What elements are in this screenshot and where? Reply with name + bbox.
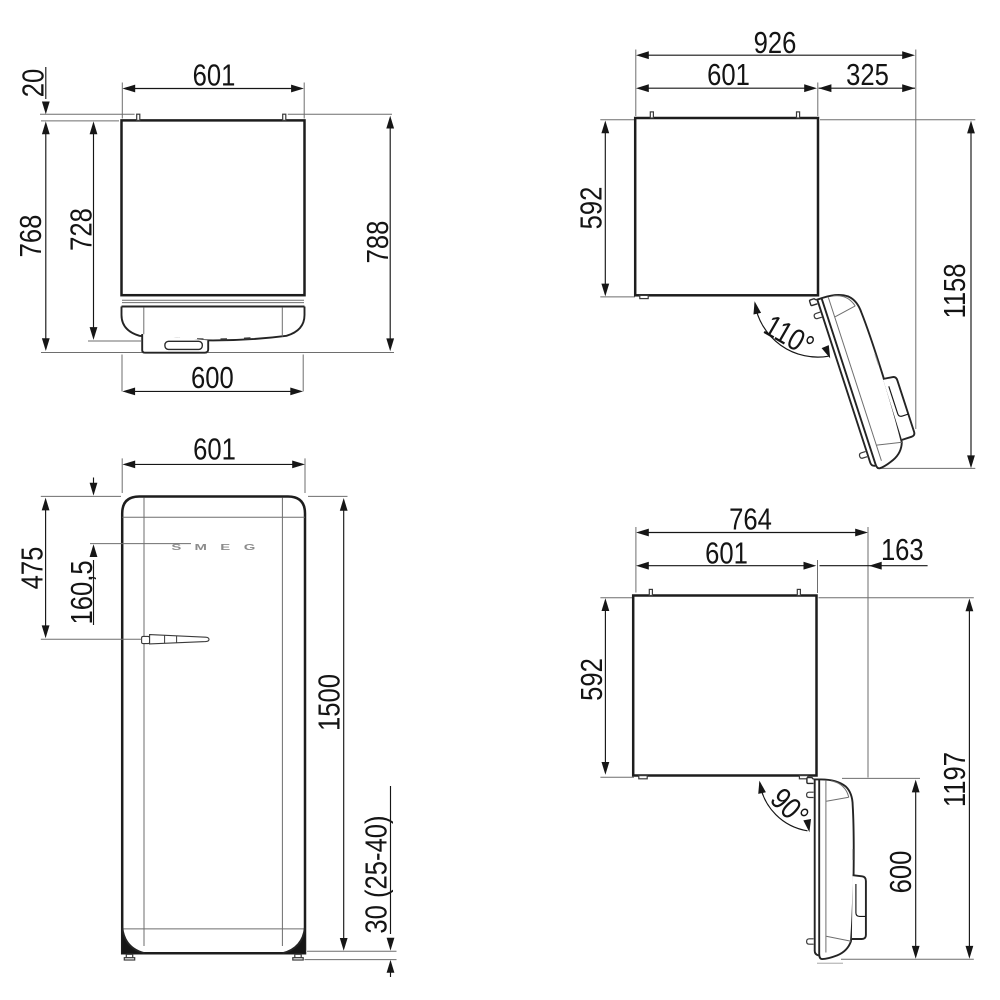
svg-text:788: 788 (361, 221, 395, 264)
svg-text:M: M (194, 542, 206, 552)
svg-text:E: E (220, 542, 230, 552)
svg-text:601: 601 (193, 432, 236, 466)
svg-text:592: 592 (575, 187, 609, 230)
svg-text:764: 764 (729, 502, 772, 536)
svg-text:1500: 1500 (313, 674, 347, 731)
svg-text:1158: 1158 (938, 263, 972, 318)
svg-text:30 (25-40): 30 (25-40) (360, 815, 394, 933)
svg-text:475: 475 (15, 547, 49, 590)
svg-text:592: 592 (575, 658, 609, 701)
svg-text:926: 926 (754, 26, 797, 60)
svg-text:325: 325 (846, 58, 889, 92)
svg-text:160,5: 160,5 (65, 560, 99, 624)
svg-text:20: 20 (17, 69, 51, 97)
svg-text:601: 601 (705, 536, 748, 570)
svg-text:600: 600 (191, 361, 234, 395)
svg-text:728: 728 (65, 208, 99, 251)
svg-text:600: 600 (884, 851, 918, 894)
svg-text:S: S (171, 542, 181, 552)
svg-text:163: 163 (881, 533, 924, 567)
svg-text:601: 601 (707, 58, 750, 92)
svg-text:G: G (244, 542, 256, 552)
svg-text:601: 601 (193, 58, 236, 92)
svg-text:1197: 1197 (938, 752, 972, 807)
svg-text:768: 768 (14, 215, 48, 258)
